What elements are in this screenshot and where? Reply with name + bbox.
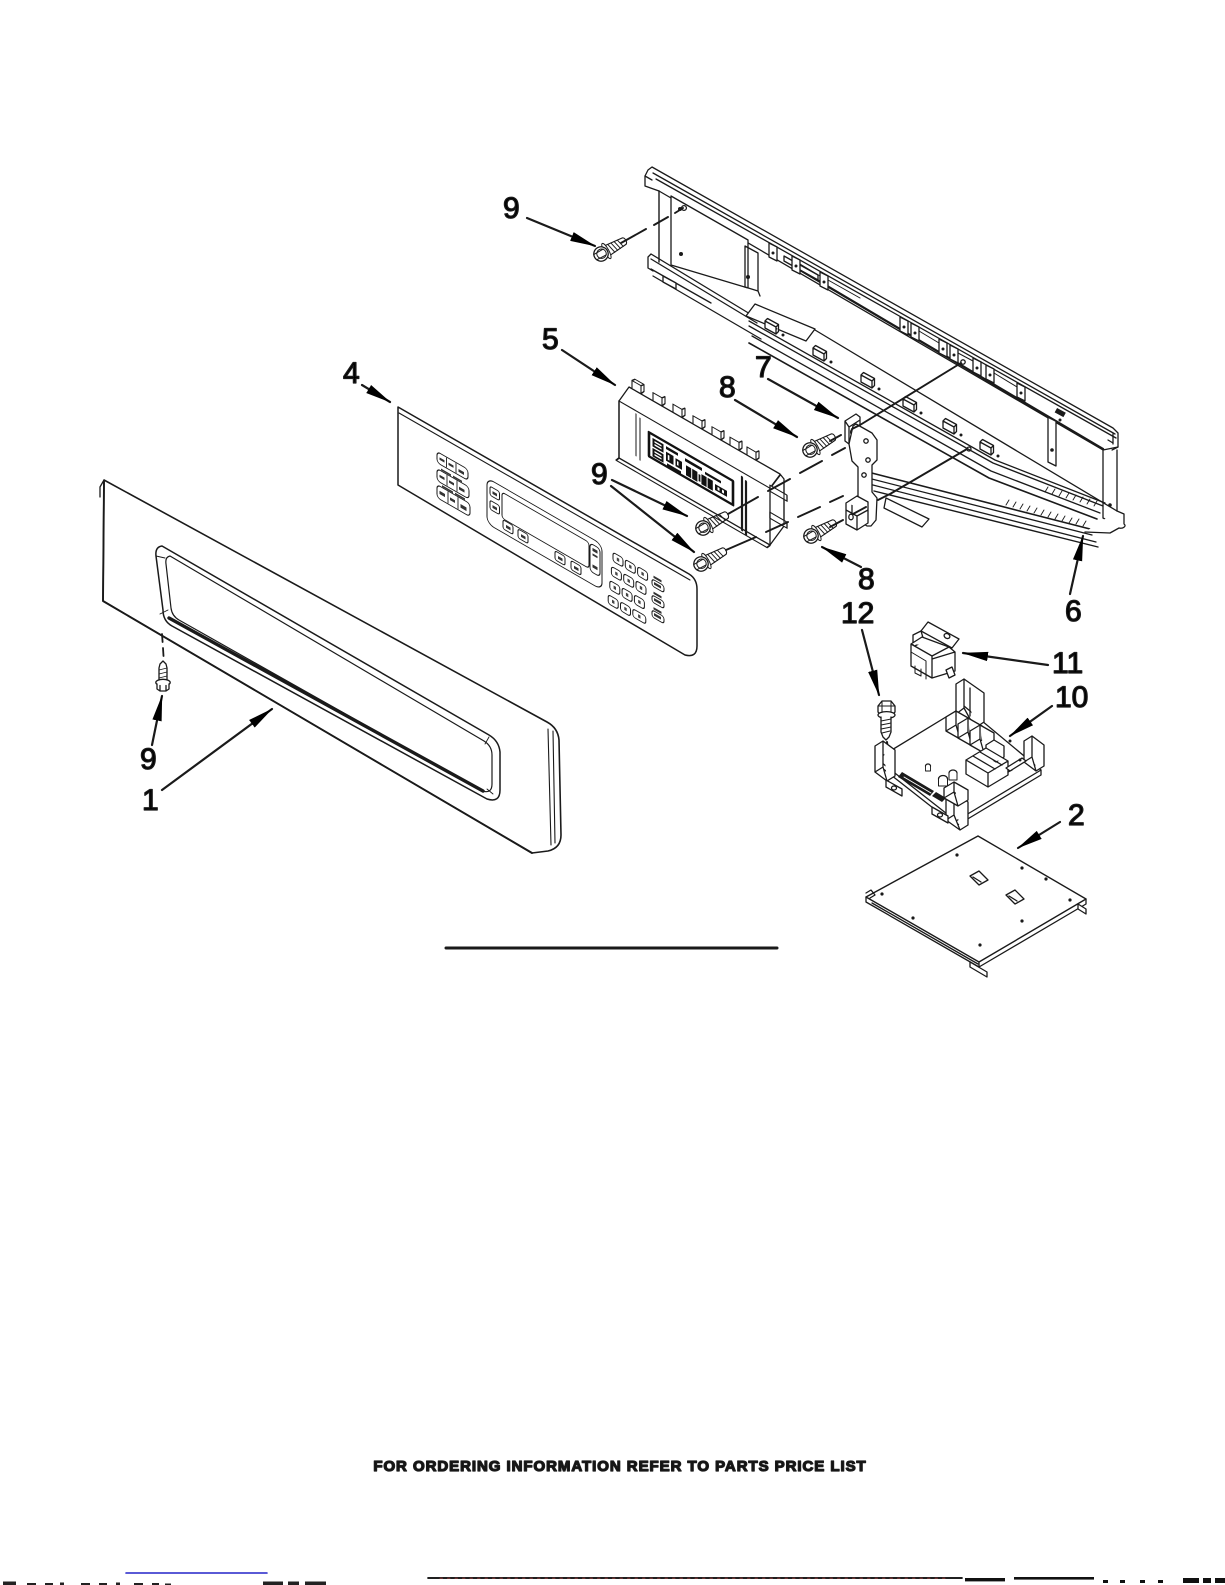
svg-text:10: 10: [1055, 681, 1088, 714]
svg-text:9: 9: [140, 743, 157, 776]
svg-text:12: 12: [841, 597, 874, 630]
svg-text:9: 9: [591, 458, 608, 491]
svg-text:8: 8: [719, 371, 736, 404]
svg-text:4: 4: [343, 357, 360, 390]
svg-text:11: 11: [1052, 647, 1083, 680]
svg-text:1: 1: [142, 784, 159, 817]
svg-text:FOR ORDERING INFORMATION REFER: FOR ORDERING INFORMATION REFER TO PARTS …: [373, 1458, 866, 1475]
svg-text:5: 5: [542, 323, 559, 356]
svg-text:9: 9: [503, 192, 520, 225]
svg-text:2: 2: [1068, 799, 1085, 832]
svg-text:6: 6: [1065, 595, 1082, 628]
